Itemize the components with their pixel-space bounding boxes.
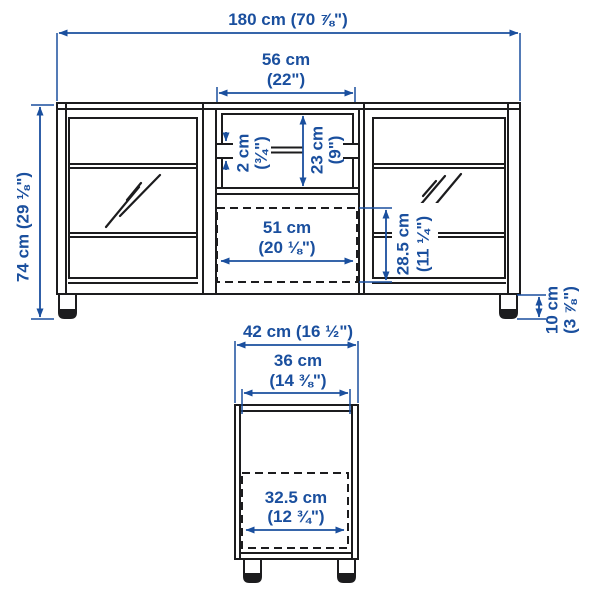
side-dimensions: 42 cm (16 ½") 36 cm (14 ⅜") 32.5 cm (12 …: [235, 322, 358, 530]
front-legs: [59, 294, 517, 318]
opening-height-in-label: (9"): [326, 136, 345, 165]
side-outline: [235, 405, 358, 559]
shelf-thickness-cm-label: 2 cm: [234, 134, 253, 173]
drawer-depth-cm-label: 32.5 cm: [265, 488, 327, 507]
cabinet-outline: [57, 103, 520, 294]
leg-height-in-label: (3 ⅞"): [561, 286, 580, 334]
opening-width-cm-label: 56 cm: [262, 50, 310, 69]
leg-foot: [59, 309, 76, 318]
product-dimension-illustration: 180 cm (70 ⅞") 56 cm (22") 74 cm (29 ⅛"): [0, 0, 600, 600]
shelf-thickness-in-label: (¾"): [252, 136, 271, 170]
dim-drawer-height: 28.5 cm (11 ¼"): [359, 208, 433, 282]
leg-foot: [338, 573, 355, 582]
opening-width-in-label: (22"): [267, 70, 305, 89]
front-dimensions: 180 cm (70 ⅞") 56 cm (22") 74 cm (29 ⅛"): [14, 10, 580, 334]
side-view: 42 cm (16 ½") 36 cm (14 ⅜") 32.5 cm (12 …: [235, 322, 358, 582]
drawer-width-in-label: (20 ⅛"): [258, 238, 315, 257]
total-width-label: 180 cm (70 ⅞"): [228, 10, 348, 29]
leg-foot: [500, 309, 517, 318]
left-glass-door: [69, 118, 197, 283]
leg-height-cm-label: 10 cm: [543, 286, 562, 334]
dim-shelf-thickness: 2 cm (¾"): [226, 132, 271, 172]
total-depth-label: 42 cm (16 ½"): [243, 322, 353, 341]
leg-foot: [244, 573, 261, 582]
dim-leg-height: 10 cm (3 ⅞"): [517, 286, 580, 334]
dim-drawer-width: 51 cm (20 ⅛"): [221, 218, 353, 261]
side-legs: [244, 559, 355, 582]
dim-opening-height: 23 cm (9"): [303, 116, 345, 186]
left-door-frame: [69, 118, 197, 278]
total-height-label: 74 cm (29 ⅛"): [14, 172, 33, 282]
interior-depth-cm-label: 36 cm: [274, 351, 322, 370]
furniture-dimension-diagram: 180 cm (70 ⅞") 56 cm (22") 74 cm (29 ⅛"): [0, 0, 600, 600]
glass-pane-marks: [106, 175, 160, 227]
dim-opening-width: 56 cm (22"): [217, 50, 355, 102]
drawer-height-in-label: (11 ¼"): [414, 216, 433, 272]
dim-drawer-depth: 32.5 cm (12 ¾"): [246, 488, 344, 530]
drawer-width-cm-label: 51 cm: [263, 218, 311, 237]
dim-total-height: 74 cm (29 ⅛"): [14, 105, 55, 319]
drawer-height-cm-label: 28.5 cm: [394, 213, 413, 275]
drawer-depth-in-label: (12 ¾"): [267, 507, 324, 526]
glass-mark: [120, 175, 160, 216]
interior-depth-in-label: (14 ⅜"): [269, 371, 326, 390]
cabinet-structure: [57, 103, 520, 318]
opening-height-cm-label: 23 cm: [308, 126, 327, 174]
front-view: 180 cm (70 ⅞") 56 cm (22") 74 cm (29 ⅛"): [14, 10, 580, 334]
